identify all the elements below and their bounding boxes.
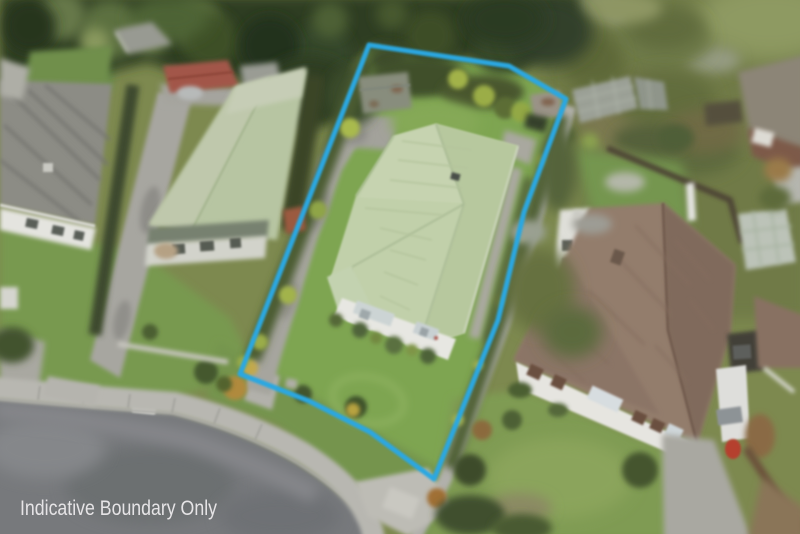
svg-text:Indicative Boundary Only: Indicative Boundary Only bbox=[20, 497, 217, 520]
